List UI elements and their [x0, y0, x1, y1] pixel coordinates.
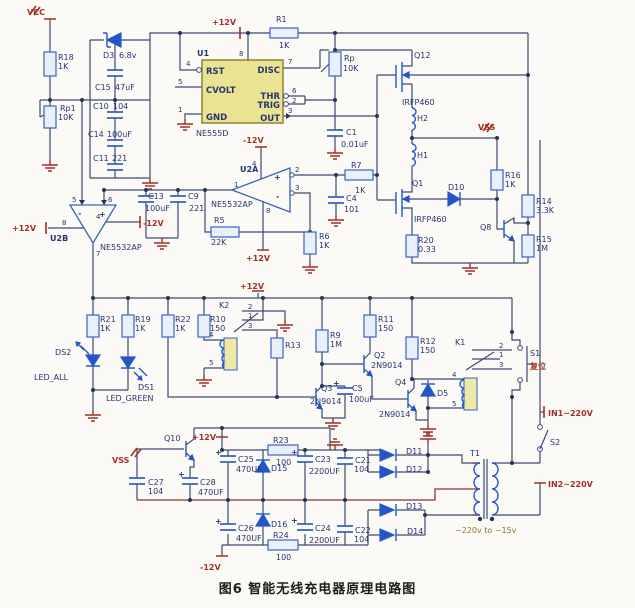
- c14-val: 100uF: [107, 130, 132, 139]
- svg-text:3: 3: [295, 184, 299, 192]
- r14-val: 3.3K: [536, 206, 555, 215]
- svg-text:3: 3: [288, 107, 292, 115]
- r6-body: [304, 232, 316, 254]
- c5-ref: C5: [352, 384, 363, 393]
- q1-part: IRFP460: [414, 215, 447, 224]
- d14-ref: D14: [407, 527, 423, 536]
- r6-val: 1K: [319, 241, 330, 250]
- r12-ref: R12: [420, 337, 436, 346]
- c21-ref: C21: [355, 456, 371, 465]
- svg-text:8: 8: [62, 219, 66, 227]
- r22-val: 1K: [175, 324, 186, 333]
- svg-text:+: +: [215, 448, 222, 457]
- c28-val: 470UF: [198, 488, 224, 497]
- svg-text:4: 4: [186, 60, 191, 68]
- rp-body: [329, 52, 341, 76]
- s1-ref: S1: [530, 349, 540, 358]
- r18-ref: R18: [58, 53, 74, 62]
- rp1-val: 10K: [58, 113, 74, 122]
- r16-val: 1K: [505, 180, 516, 189]
- q12-part: IRFP460: [402, 98, 435, 107]
- c5-val: 100uF: [349, 395, 374, 404]
- r22-ref: R22: [175, 315, 191, 324]
- svg-text:4: 4: [452, 371, 457, 379]
- d14-diode: [380, 529, 394, 541]
- svg-text:1: 1: [499, 351, 503, 359]
- d3-zener: [107, 33, 121, 47]
- r20-body: [406, 235, 418, 257]
- svg-text:6: 6: [108, 196, 113, 204]
- r18-body: [44, 52, 56, 76]
- c28-ref: C28: [200, 478, 216, 487]
- q2-part: 2N9014: [371, 361, 402, 370]
- d16-diode: [256, 514, 270, 526]
- d13-ref: D13: [406, 502, 422, 511]
- t1-transformer: [474, 459, 498, 519]
- d12-diode: [380, 466, 394, 478]
- s2-ref: S2: [550, 438, 560, 447]
- c26-ref: C26: [238, 524, 254, 533]
- r19-ref: R19: [135, 315, 151, 324]
- r21-val: 1K: [100, 324, 111, 333]
- u1-gnd: GND: [206, 113, 227, 123]
- svg-text:4: 4: [252, 160, 257, 168]
- c23-val: 2200UF: [309, 467, 340, 476]
- u1-disc: DISC: [257, 66, 280, 76]
- r1-val: 1K: [279, 41, 290, 50]
- p12-k2-label: +12V: [240, 282, 265, 291]
- r15-ref: R15: [536, 235, 552, 244]
- svg-text:3: 3: [248, 322, 252, 330]
- ds2-led: [86, 355, 100, 366]
- r9-body: [316, 330, 328, 352]
- u2b-part: NE5532AP: [100, 243, 142, 252]
- h2-ref: H2: [417, 114, 428, 123]
- svg-text:7: 7: [288, 58, 292, 66]
- d10-ref: D10: [448, 183, 464, 192]
- c11-ref: C11: [93, 154, 109, 163]
- ds1-ref: DS1: [138, 383, 154, 392]
- svg-text:2: 2: [295, 166, 299, 174]
- r1-ref: R1: [276, 15, 287, 24]
- svg-text:5: 5: [72, 196, 76, 204]
- rp-val: 10K: [343, 64, 359, 73]
- q4-part: 2N9014: [379, 410, 410, 419]
- r22-body: [162, 315, 174, 337]
- c1-ref: C1: [346, 128, 357, 137]
- ds2-ref: DS2: [55, 348, 71, 357]
- vss-bot-label: VSS: [112, 456, 130, 465]
- r10-ref: R10: [210, 315, 226, 324]
- svg-text:5: 5: [452, 400, 456, 408]
- coils: [412, 108, 498, 519]
- r5-ref: R5: [214, 216, 225, 225]
- c22-ref: C22: [355, 526, 371, 535]
- svg-text:3: 3: [499, 361, 503, 369]
- r15-val: 1M: [536, 244, 548, 253]
- n12-u2b-label: -12V: [143, 219, 164, 228]
- switch-s2[interactable]: [538, 425, 548, 452]
- c24-val: 2200UF: [309, 536, 340, 545]
- c15-ref: C15: [95, 83, 111, 92]
- q1-ref: Q1: [412, 179, 423, 188]
- r9-ref: R9: [330, 331, 341, 340]
- r24-ref: R24: [273, 531, 289, 540]
- c13-ref: C13: [148, 192, 164, 201]
- d16-ref: D16: [271, 520, 287, 529]
- p12-q10-label: +12V: [192, 433, 217, 442]
- u1-part: NE555D: [196, 129, 228, 138]
- u1-cvolt: CVOLT: [206, 86, 236, 96]
- r9-val: 1M: [330, 340, 342, 349]
- c26-val: 470UF: [236, 534, 262, 543]
- r21-ref: R21: [100, 315, 116, 324]
- r20-ref: R20: [418, 236, 434, 245]
- svg-text:+: +: [291, 516, 298, 525]
- c25-ref: C25: [238, 455, 254, 464]
- svg-text:+: +: [291, 448, 298, 457]
- vcc-label: VCC: [27, 8, 45, 17]
- rp-ref: Rp: [344, 54, 355, 63]
- u2a-part: NE5532AP: [211, 200, 253, 209]
- q2-ref: Q2: [374, 351, 385, 360]
- r12-val: 150: [420, 346, 435, 355]
- svg-text:6: 6: [292, 87, 297, 95]
- h2-coil: [412, 108, 416, 130]
- svg-text:5: 5: [178, 78, 182, 86]
- p12-555-label: +12V: [212, 18, 237, 27]
- svg-text:8: 8: [266, 207, 270, 215]
- r1-body: [270, 28, 298, 38]
- u1-rst: RST: [206, 67, 225, 77]
- svg-text:2: 2: [292, 97, 296, 105]
- d5-diode: [421, 384, 435, 396]
- q12-ref: Q12: [414, 51, 430, 60]
- c1-val: 0.01uF: [341, 140, 369, 149]
- u1-trig: TRIG: [258, 101, 281, 111]
- rp1-ref: Rp1: [60, 104, 76, 113]
- n12-555-label: -12V: [243, 136, 264, 145]
- ratio-label: ~220v to ~15v: [455, 526, 517, 535]
- c13-val: 100uF: [145, 204, 170, 213]
- r11-ref: R11: [378, 315, 394, 324]
- svg-text:7: 7: [96, 250, 100, 258]
- d12-ref: D12: [406, 465, 422, 474]
- q3-ref: Q3: [321, 384, 332, 393]
- d10-diode: [448, 192, 460, 206]
- c4-val: 101: [344, 205, 359, 214]
- u2b-ref: U2B: [50, 234, 68, 243]
- rp1-body: [44, 106, 56, 128]
- r15-body: [522, 235, 534, 257]
- r18-val: 1K: [58, 62, 69, 71]
- c25-val: 470UF: [236, 465, 262, 474]
- r14-ref: R14: [536, 197, 552, 206]
- c4-ref: C4: [346, 194, 357, 203]
- r6-ref: R6: [319, 232, 330, 241]
- vss-top-label: VSS: [478, 123, 496, 132]
- c11-val: 221: [112, 154, 127, 163]
- svg-text:-: -: [276, 192, 279, 201]
- d5-ref: D5: [437, 389, 448, 398]
- q8-ref: Q8: [480, 223, 491, 232]
- r16-body: [491, 170, 503, 190]
- r11-body: [364, 315, 376, 337]
- reset-label: 复位: [529, 361, 546, 371]
- t1-ref: T1: [469, 449, 480, 458]
- c27-val: 104: [148, 487, 163, 496]
- svg-text:4: 4: [96, 213, 101, 221]
- svg-text:+: +: [178, 470, 185, 479]
- r5-val: 22K: [211, 238, 227, 247]
- svg-text:1: 1: [248, 312, 252, 320]
- r13-ref: R13: [285, 341, 301, 350]
- ds1-name: LED_GREEN: [106, 394, 154, 403]
- c22-val: 104: [354, 535, 369, 544]
- schematic-page: VCC +12V -12V +12V -12V +12V +12V VSS VS…: [0, 0, 635, 608]
- r11-val: 150: [378, 324, 393, 333]
- figure-caption: 图6 智能无线充电器原理电路图: [0, 578, 635, 597]
- c23-ref: C23: [315, 455, 331, 464]
- q4-ref: Q4: [395, 378, 406, 387]
- d3-val: 6.8v: [119, 51, 137, 60]
- r14-body: [522, 195, 534, 217]
- c10-val: 104: [113, 102, 128, 111]
- svg-text:1: 1: [178, 106, 182, 114]
- svg-text:+: +: [333, 379, 340, 388]
- r24-body: [268, 540, 298, 550]
- switch-s1[interactable]: [518, 346, 523, 383]
- q1-mosfet: [396, 189, 409, 217]
- r5-body: [211, 227, 239, 237]
- svg-text:2: 2: [248, 303, 252, 311]
- c15-val: 47uF: [115, 83, 135, 92]
- r19-val: 1K: [135, 324, 146, 333]
- d3-ref: D3: [103, 51, 114, 60]
- q10-ref: Q10: [164, 434, 180, 443]
- ds2-name: LED_ALL: [34, 373, 69, 382]
- u1-ref: U1: [197, 49, 209, 58]
- r21-body: [87, 315, 99, 337]
- q3-part: 2N9014: [310, 397, 341, 406]
- h1-ref: H1: [417, 151, 428, 160]
- p12-u2b-label: +12V: [12, 224, 37, 233]
- relay-k2-coil: [220, 338, 237, 370]
- svg-text:5: 5: [209, 359, 213, 367]
- k2-ref: K2: [219, 301, 229, 310]
- svg-text:1: 1: [234, 181, 238, 189]
- r23-val: 100: [276, 458, 291, 467]
- r19-body: [122, 315, 134, 337]
- k1-ref: K1: [455, 338, 465, 347]
- c14-ref: C14: [88, 130, 104, 139]
- labels: VCC +12V -12V +12V -12V +12V +12V VSS VS…: [12, 8, 594, 572]
- d13-diode: [380, 504, 394, 516]
- ds1-led: [121, 357, 135, 368]
- r13-body: [271, 338, 283, 358]
- c24-ref: C24: [315, 524, 331, 533]
- svg-text:8: 8: [239, 50, 243, 58]
- schematic-canvas: VCC +12V -12V +12V -12V +12V +12V VSS VS…: [0, 0, 635, 608]
- c9-val: 221: [189, 204, 204, 213]
- n12-bot-label: -12V: [200, 563, 221, 572]
- c21-val: 104: [354, 465, 369, 474]
- svg-text:+: +: [215, 517, 222, 526]
- svg-text:2: 2: [499, 342, 503, 350]
- c27-ref: C27: [148, 478, 164, 487]
- r7-body: [345, 170, 373, 180]
- p12-u2a-label: +12V: [246, 254, 271, 263]
- r23-ref: R23: [273, 436, 289, 445]
- r20-val: 0.33: [418, 245, 436, 254]
- r7-ref: R7: [351, 161, 362, 170]
- r10-val: 150: [210, 324, 225, 333]
- svg-text:+: +: [274, 173, 281, 182]
- c9-ref: C9: [188, 192, 199, 201]
- in1-label: IN1~220V: [548, 409, 594, 418]
- c10-ref: C10: [93, 102, 109, 111]
- r24-val: 100: [276, 553, 291, 562]
- d11-ref: D11: [406, 447, 422, 456]
- h1-coil: [412, 144, 416, 166]
- r12-body: [406, 337, 418, 359]
- in2-label: IN2~220V: [548, 480, 594, 489]
- r16-ref: R16: [505, 171, 521, 180]
- d11-diode: [380, 449, 394, 461]
- relay-k1-coil: [460, 378, 477, 410]
- u1-out: OUT: [260, 114, 280, 124]
- svg-text:-: -: [78, 209, 81, 218]
